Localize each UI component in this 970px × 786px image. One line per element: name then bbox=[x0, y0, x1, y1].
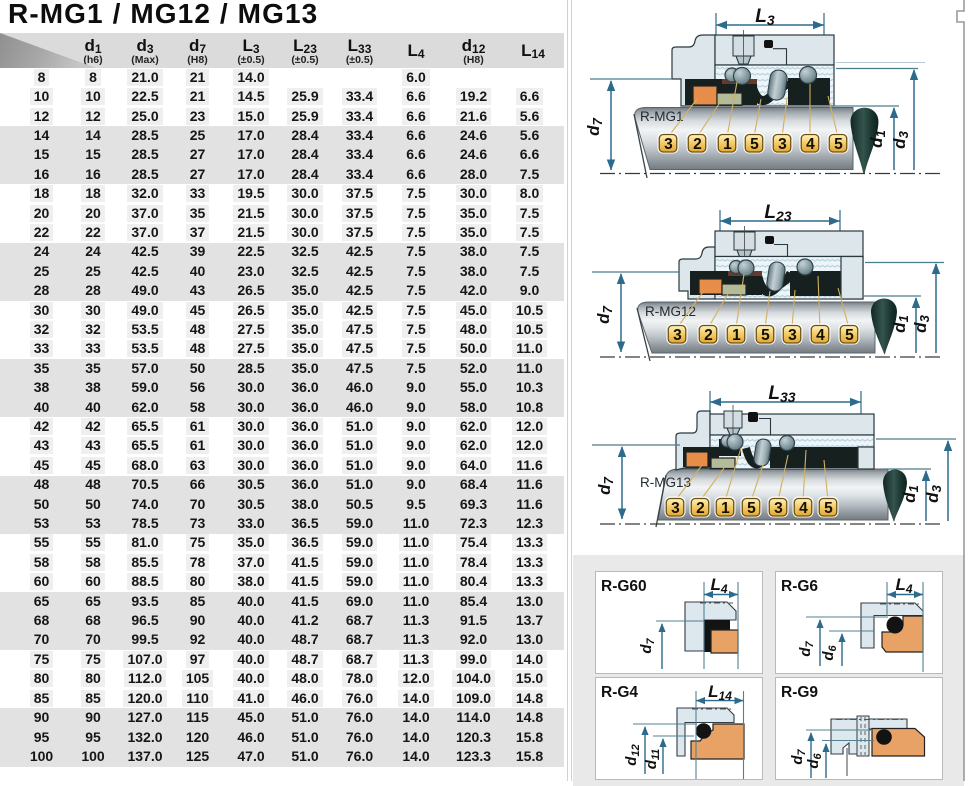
svg-text:3: 3 bbox=[671, 500, 680, 517]
svg-text:4: 4 bbox=[816, 327, 825, 344]
svg-text:R-G4: R-G4 bbox=[601, 684, 638, 701]
svg-text:3: 3 bbox=[664, 136, 673, 153]
svg-text:1: 1 bbox=[723, 136, 732, 153]
svg-text:5: 5 bbox=[761, 327, 770, 344]
svg-text:d7: d7 bbox=[594, 305, 615, 323]
svg-text:R-MG13: R-MG13 bbox=[640, 475, 691, 490]
svg-text:R-G9: R-G9 bbox=[781, 684, 818, 701]
svg-text:3: 3 bbox=[788, 327, 797, 344]
svg-text:5: 5 bbox=[834, 136, 843, 153]
svg-text:4: 4 bbox=[806, 136, 815, 153]
svg-text:R-G60: R-G60 bbox=[601, 578, 647, 595]
svg-text:2: 2 bbox=[693, 136, 702, 153]
svg-text:d7: d7 bbox=[584, 117, 605, 135]
svg-text:R-MG1: R-MG1 bbox=[640, 109, 684, 124]
svg-text:L33: L33 bbox=[768, 383, 795, 405]
svg-text:R-G6: R-G6 bbox=[781, 578, 818, 595]
svg-text:1: 1 bbox=[721, 500, 730, 517]
svg-text:d3: d3 bbox=[911, 314, 932, 332]
svg-text:5: 5 bbox=[824, 500, 833, 517]
svg-text:5: 5 bbox=[747, 500, 756, 517]
svg-text:2: 2 bbox=[704, 327, 713, 344]
svg-text:3: 3 bbox=[778, 136, 787, 153]
svg-text:L23: L23 bbox=[764, 202, 791, 224]
svg-text:2: 2 bbox=[696, 500, 705, 517]
svg-text:d3: d3 bbox=[890, 130, 911, 148]
svg-text:d7: d7 bbox=[595, 476, 616, 494]
svg-text:1: 1 bbox=[732, 327, 741, 344]
svg-text:L3: L3 bbox=[755, 6, 775, 28]
svg-text:3: 3 bbox=[673, 327, 682, 344]
svg-text:4: 4 bbox=[799, 500, 808, 517]
svg-text:3: 3 bbox=[774, 500, 783, 517]
svg-text:5: 5 bbox=[845, 327, 854, 344]
svg-text:5: 5 bbox=[750, 136, 759, 153]
